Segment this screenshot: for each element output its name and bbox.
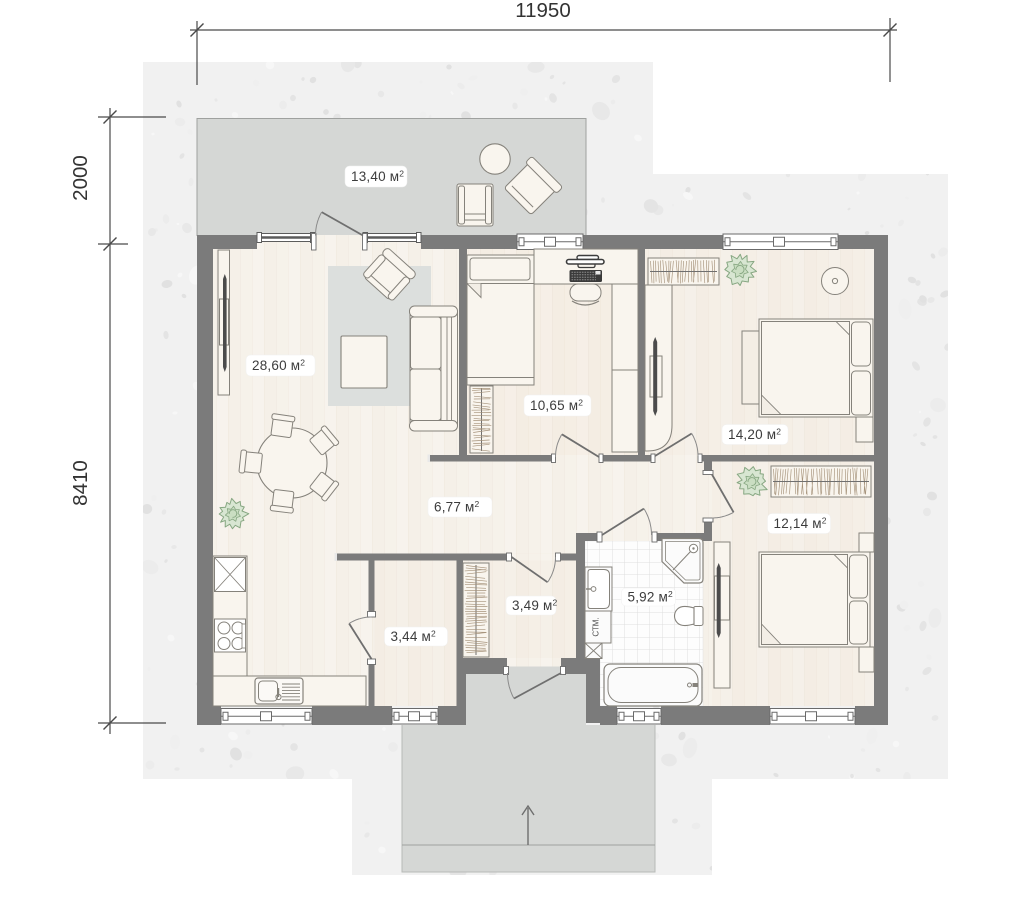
svg-text:5,92 м2: 5,92 м2: [628, 589, 674, 605]
svg-text:28,60 м2: 28,60 м2: [252, 358, 305, 374]
svg-text:3,44 м2: 3,44 м2: [391, 629, 437, 645]
svg-text:12,14 м2: 12,14 м2: [774, 516, 827, 532]
svg-text:6,77 м2: 6,77 м2: [434, 499, 480, 514]
svg-text:13,40 м2: 13,40 м2: [351, 169, 404, 185]
svg-text:2000: 2000: [69, 155, 92, 201]
svg-text:8410: 8410: [69, 460, 92, 506]
svg-text:11950: 11950: [515, 0, 570, 22]
svg-text:14,20 м2: 14,20 м2: [728, 427, 781, 443]
svg-text:3,49 м2: 3,49 м2: [512, 598, 558, 614]
svg-text:СТМ.: СТМ.: [592, 617, 601, 636]
svg-text:10,65 м2: 10,65 м2: [530, 398, 583, 414]
